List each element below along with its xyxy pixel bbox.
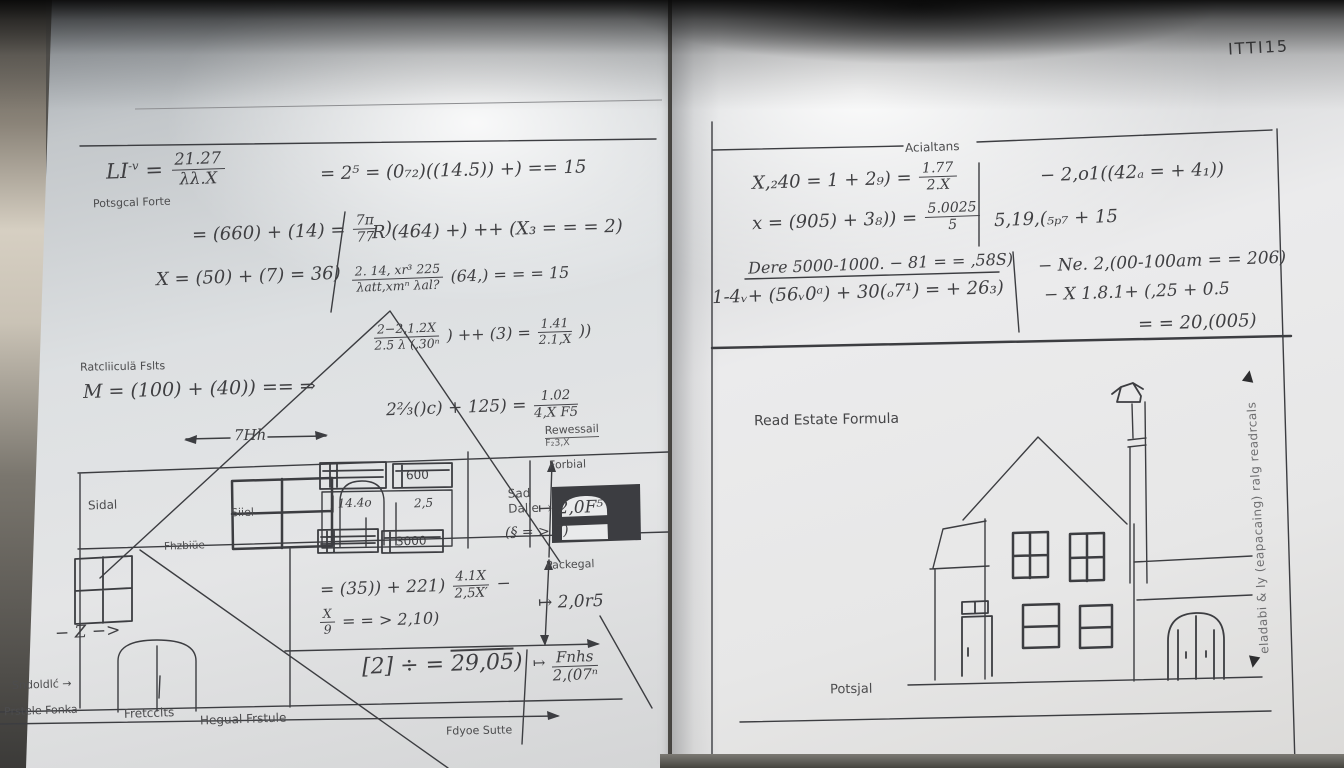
label-prstele-fonka: Prstele Fonka bbox=[4, 703, 78, 719]
formula-li-den: λλ.X bbox=[172, 169, 225, 189]
formula-x905-den: 5 bbox=[925, 216, 981, 233]
label-acialtans: Acialtans bbox=[905, 139, 960, 155]
formula-li: LI-v = 21.27λλ.X bbox=[105, 150, 227, 191]
formula-22-mid: ) ++ (3) = bbox=[446, 323, 531, 345]
label-potsgcal-forte: Potsgcal Forte bbox=[93, 195, 171, 211]
formula-35-num: 4.1X bbox=[452, 569, 489, 586]
formula-20005: = = 20,(005) bbox=[1138, 310, 1257, 335]
z-arrow: − Z −> bbox=[55, 620, 121, 643]
label-read-estate-formula: Read Estate Formula bbox=[754, 411, 899, 430]
label-fretcclts: Fretcclts bbox=[124, 705, 175, 721]
formula-x905-num: 5.0025 bbox=[924, 200, 980, 218]
formula-35-post: − bbox=[496, 574, 511, 594]
window-label-600: 600 bbox=[406, 468, 429, 483]
formula-2-post: ) bbox=[514, 649, 523, 674]
formula-519: 5,19,(₅ₚ₇ + 15 bbox=[994, 206, 1119, 231]
formula-x905-pre: x = (905) + 3₈)) = bbox=[752, 208, 918, 235]
formula-35: = (35)) + 221) 4.1X2,5X′ − bbox=[320, 569, 512, 606]
photo-of-sketch-pages: LI-v = 21.27λλ.X Potsgcal Forte = 2⁵ = (… bbox=[0, 0, 1344, 768]
formula-22-post: )) bbox=[578, 321, 591, 340]
label-rewessail-line2: F₂3,X bbox=[545, 436, 599, 450]
label-rewessail-line1: Rewessail bbox=[545, 422, 599, 437]
table-surface-bottom bbox=[660, 754, 1344, 768]
value-144: , 14.4o bbox=[330, 495, 372, 510]
formula-sect7: (§ = > 7) bbox=[505, 523, 569, 541]
formula-x40-num: 1.77 bbox=[919, 160, 957, 178]
value-25: 2,5 bbox=[414, 496, 434, 511]
formula-214-post: (64,) = = = 15 bbox=[450, 263, 569, 286]
formula-x9: X9 = = > 2,10) bbox=[318, 604, 440, 637]
fnhs-den: 2,(07ⁿ bbox=[552, 666, 598, 684]
formula-x9-post: = = > 2,10) bbox=[342, 608, 440, 630]
label-fhzbide: Fhzbiüe bbox=[164, 539, 205, 552]
formula-660-pre: = (660) + (14) = bbox=[192, 219, 346, 245]
label-hegual-frstule: Hegual Frstule bbox=[200, 710, 287, 727]
formula-23c-pre: 2⅔()c) + 125) = bbox=[386, 395, 527, 420]
formula-23c: 2⅔()c) + 125) = 1.024,X F5 bbox=[386, 389, 581, 426]
up-arrow-icon: ▲ bbox=[1242, 365, 1256, 385]
formula-2-overline: 29,05 bbox=[451, 650, 515, 677]
formula-23c-den: 4,X F5 bbox=[534, 404, 578, 420]
corner-code: ITTI15 bbox=[1228, 36, 1290, 58]
formula-660: = (660) + (14) = 7π77 ) bbox=[192, 213, 393, 252]
label-potsjal: Potsjal bbox=[830, 682, 873, 698]
fnhs-arrow: ↦ bbox=[533, 654, 546, 672]
label-fdyoe-sutte: Fdyoe Sutte bbox=[446, 723, 512, 737]
formula-35-pre: = (35)) + 221) bbox=[320, 576, 446, 600]
dimension-7hh: 7Hh bbox=[234, 426, 267, 445]
formula-x40-pre: X,₂40 = 1 + 2₉) = bbox=[752, 167, 912, 194]
label-siiel: Siiel bbox=[231, 506, 254, 520]
formula-2-pre: [2] ÷ = bbox=[362, 652, 445, 680]
formula-x40: X,₂40 = 1 + 2₉) = 1.772.X bbox=[752, 160, 960, 199]
down-arrow-icon: ▼ bbox=[1247, 651, 1261, 671]
formula-x9-den: 9 bbox=[320, 622, 335, 636]
formula-fnhs: ↦ Fnhs2,(07ⁿ bbox=[532, 649, 600, 685]
formula-li-sup: -v bbox=[128, 158, 139, 172]
formula-35-den: 2,5X′ bbox=[453, 585, 490, 601]
formula-141-den: 2.1,X bbox=[538, 332, 572, 347]
formula-x9-num: X bbox=[320, 608, 335, 623]
formula-22-den: 2.5 λ (,30ⁿ bbox=[374, 336, 440, 352]
formula-214-den: λatt,xmⁿ λal? bbox=[352, 277, 444, 294]
formula-20r: ↦ 2,0r5 bbox=[538, 591, 604, 613]
formula-23c-num: 1.02 bbox=[533, 389, 577, 406]
formula-x40-den: 2.X bbox=[919, 177, 957, 194]
formula-li-pre: LI bbox=[106, 159, 129, 184]
label-forbial: Forbial bbox=[549, 457, 586, 471]
label-packegal: Packegal bbox=[546, 557, 595, 572]
label-sidal: Sidal bbox=[88, 497, 118, 512]
formula-li-eq: = bbox=[145, 158, 163, 183]
label-rewessail: Rewessail F₂3,X bbox=[545, 423, 600, 449]
label-sndolic: Sndoldlć → bbox=[12, 677, 72, 692]
label-ratcliicula-fslts: Ratcliiculä Fslts bbox=[80, 359, 165, 373]
formula-20f: ↦ 2,0F⁵ bbox=[538, 497, 604, 519]
window-label-3000: 3000 bbox=[396, 533, 427, 548]
